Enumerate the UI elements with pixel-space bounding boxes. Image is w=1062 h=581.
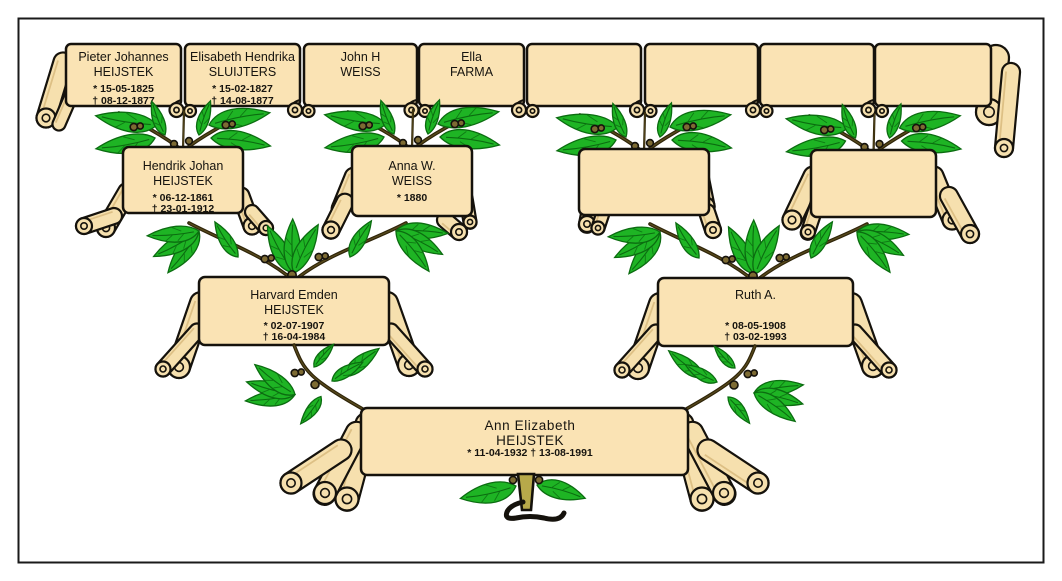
svg-text:† 03-02-1993: † 03-02-1993	[724, 331, 787, 343]
svg-text:Hendrik Johan: Hendrik Johan	[143, 159, 224, 173]
svg-text:† 16-04-1984: † 16-04-1984	[263, 331, 326, 343]
svg-text:* 1880: * 1880	[397, 192, 428, 204]
svg-text:Ann Elizabeth: Ann Elizabeth	[484, 418, 575, 433]
svg-text:Ruth A.: Ruth A.	[735, 288, 776, 302]
svg-text:* 11-04-1932 † 13-08-1991: * 11-04-1932 † 13-08-1991	[467, 447, 593, 459]
svg-text:† 14-08-1877: † 14-08-1877	[211, 95, 274, 107]
svg-text:Ella: Ella	[461, 50, 482, 64]
svg-text:† 08-12-1877: † 08-12-1877	[92, 95, 155, 107]
svg-text:FARMA: FARMA	[450, 65, 494, 79]
svg-text:SLUIJTERS: SLUIJTERS	[209, 65, 276, 79]
svg-text:* 15-05-1825: * 15-05-1825	[93, 83, 154, 95]
svg-text:Pieter Johannes: Pieter Johannes	[78, 50, 168, 64]
svg-text:HEIJSTEK: HEIJSTEK	[264, 303, 324, 317]
svg-text:WEISS: WEISS	[392, 174, 432, 188]
svg-text:† 23-01-1912: † 23-01-1912	[152, 203, 215, 215]
svg-text:HEIJSTEK: HEIJSTEK	[94, 65, 154, 79]
svg-text:* 15-02-1827: * 15-02-1827	[212, 83, 273, 95]
svg-text:WEISS: WEISS	[340, 65, 380, 79]
svg-text:HEIJSTEK: HEIJSTEK	[153, 174, 213, 188]
svg-text:Harvard Emden: Harvard Emden	[250, 288, 338, 302]
svg-text:HEIJSTEK: HEIJSTEK	[496, 433, 564, 448]
svg-text:John H: John H	[341, 50, 381, 64]
svg-text:Elisabeth Hendrika: Elisabeth Hendrika	[190, 50, 295, 64]
svg-text:Anna W.: Anna W.	[388, 159, 435, 173]
